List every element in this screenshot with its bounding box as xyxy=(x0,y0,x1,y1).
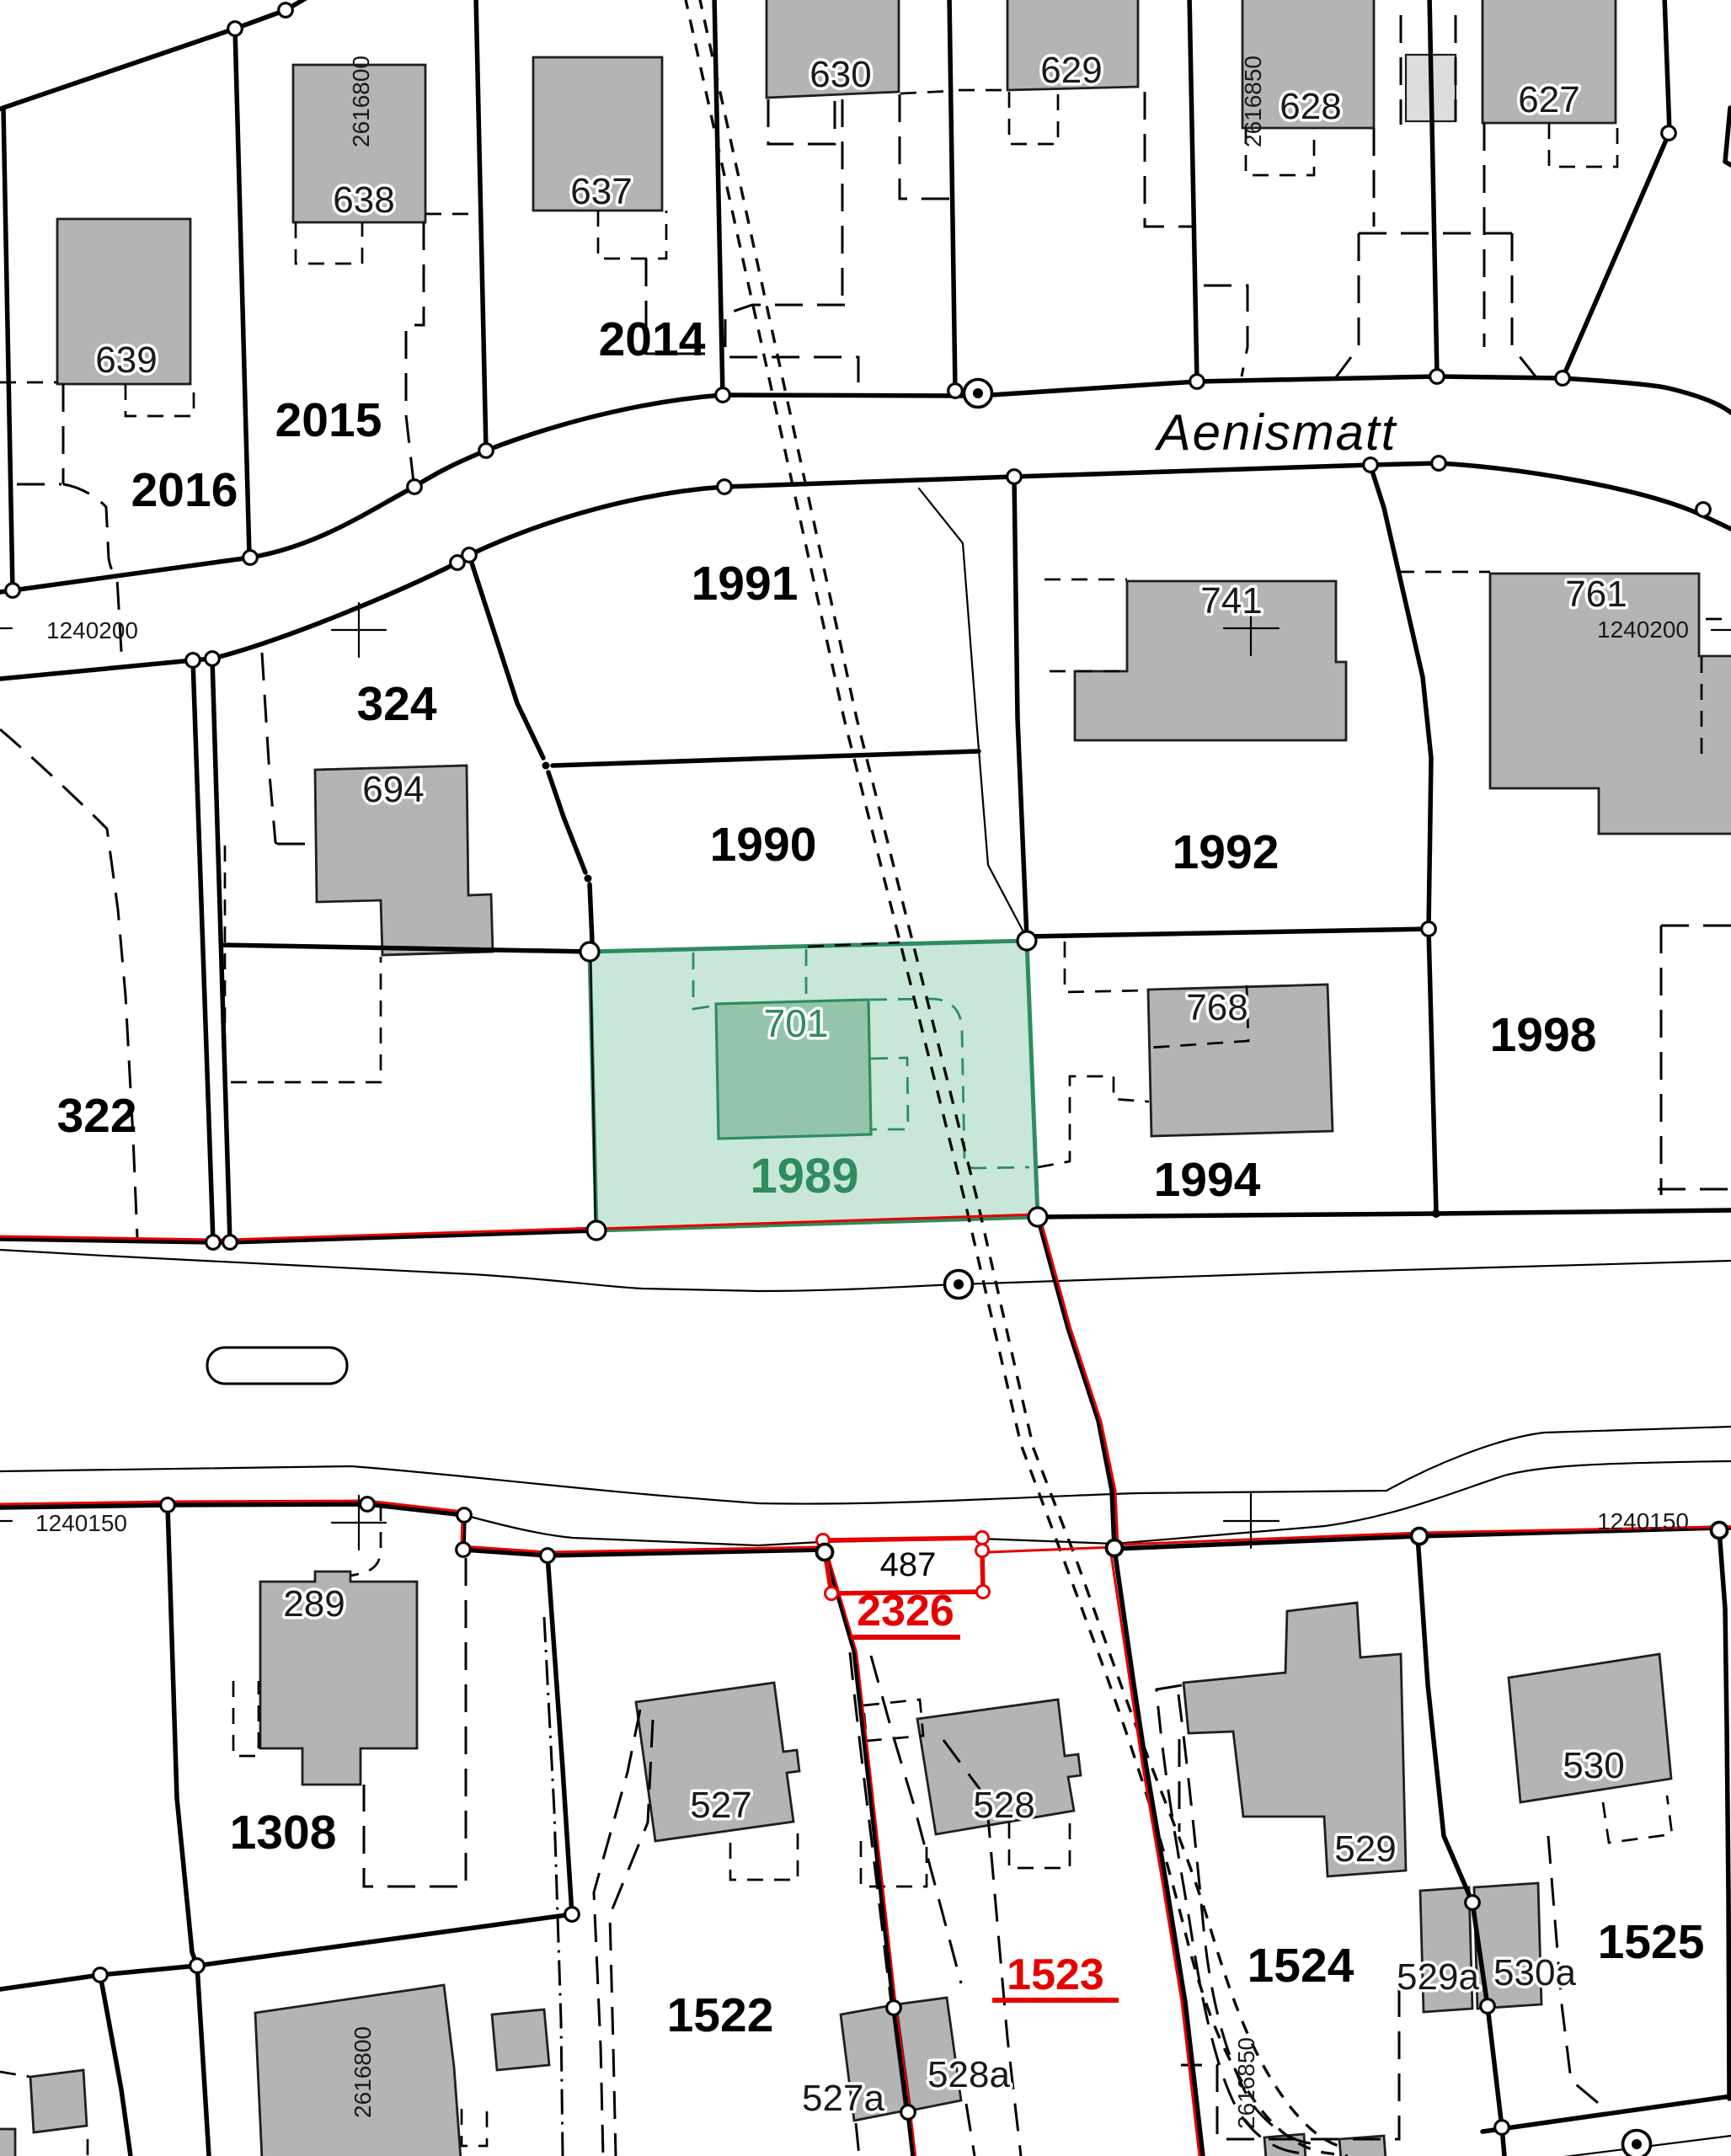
svg-text:1523: 1523 xyxy=(1007,1951,1104,1999)
svg-text:527: 527 xyxy=(690,1785,751,1826)
svg-text:1989: 1989 xyxy=(750,1149,858,1203)
svg-text:741: 741 xyxy=(1200,580,1262,622)
svg-text:530: 530 xyxy=(1563,1745,1624,1786)
svg-text:289: 289 xyxy=(283,1583,345,1625)
svg-text:638: 638 xyxy=(333,179,394,221)
svg-text:530a: 530a xyxy=(1493,1952,1576,1993)
svg-text:Aenismatt: Aenismatt xyxy=(1155,404,1397,461)
svg-text:2016: 2016 xyxy=(131,463,238,517)
svg-text:1998: 1998 xyxy=(1490,1008,1597,1062)
svg-text:2616800: 2616800 xyxy=(348,56,374,147)
svg-text:630: 630 xyxy=(809,54,871,95)
svg-text:639: 639 xyxy=(95,339,157,381)
svg-text:1308: 1308 xyxy=(230,1806,337,1860)
svg-text:637: 637 xyxy=(570,171,632,212)
svg-text:2616800: 2616800 xyxy=(350,2026,376,2118)
svg-text:1240200: 1240200 xyxy=(1597,616,1689,643)
svg-text:2616850: 2616850 xyxy=(1240,56,1266,147)
svg-text:529a: 529a xyxy=(1397,1956,1479,1998)
svg-text:627: 627 xyxy=(1518,79,1579,120)
svg-text:322: 322 xyxy=(56,1089,136,1143)
svg-text:2616850: 2616850 xyxy=(1233,2037,1259,2129)
svg-text:701: 701 xyxy=(764,1001,829,1045)
svg-text:1991: 1991 xyxy=(692,557,799,611)
svg-text:1524: 1524 xyxy=(1247,1939,1354,1993)
svg-text:694: 694 xyxy=(362,769,424,810)
svg-text:2326: 2326 xyxy=(857,1587,954,1636)
svg-text:528: 528 xyxy=(973,1785,1034,1826)
svg-text:2014: 2014 xyxy=(599,312,706,366)
svg-text:1240150: 1240150 xyxy=(35,1510,127,1536)
svg-text:761: 761 xyxy=(1565,574,1627,615)
svg-text:629: 629 xyxy=(1040,50,1102,91)
svg-text:628: 628 xyxy=(1280,86,1341,127)
svg-text:1990: 1990 xyxy=(710,818,817,872)
svg-text:529: 529 xyxy=(1334,1828,1396,1870)
svg-text:1522: 1522 xyxy=(667,1988,774,2042)
svg-text:1992: 1992 xyxy=(1173,825,1280,879)
svg-text:1240200: 1240200 xyxy=(46,617,138,643)
svg-text:324: 324 xyxy=(356,677,436,731)
svg-text:1525: 1525 xyxy=(1598,1915,1705,1969)
svg-text:1994: 1994 xyxy=(1154,1153,1261,1207)
svg-text:487: 487 xyxy=(880,1546,937,1583)
svg-text:528a: 528a xyxy=(927,2054,1010,2095)
svg-text:1240150: 1240150 xyxy=(1597,1508,1689,1534)
svg-text:2015: 2015 xyxy=(275,393,382,447)
svg-text:768: 768 xyxy=(1186,987,1247,1028)
svg-text:527a: 527a xyxy=(802,2078,884,2119)
